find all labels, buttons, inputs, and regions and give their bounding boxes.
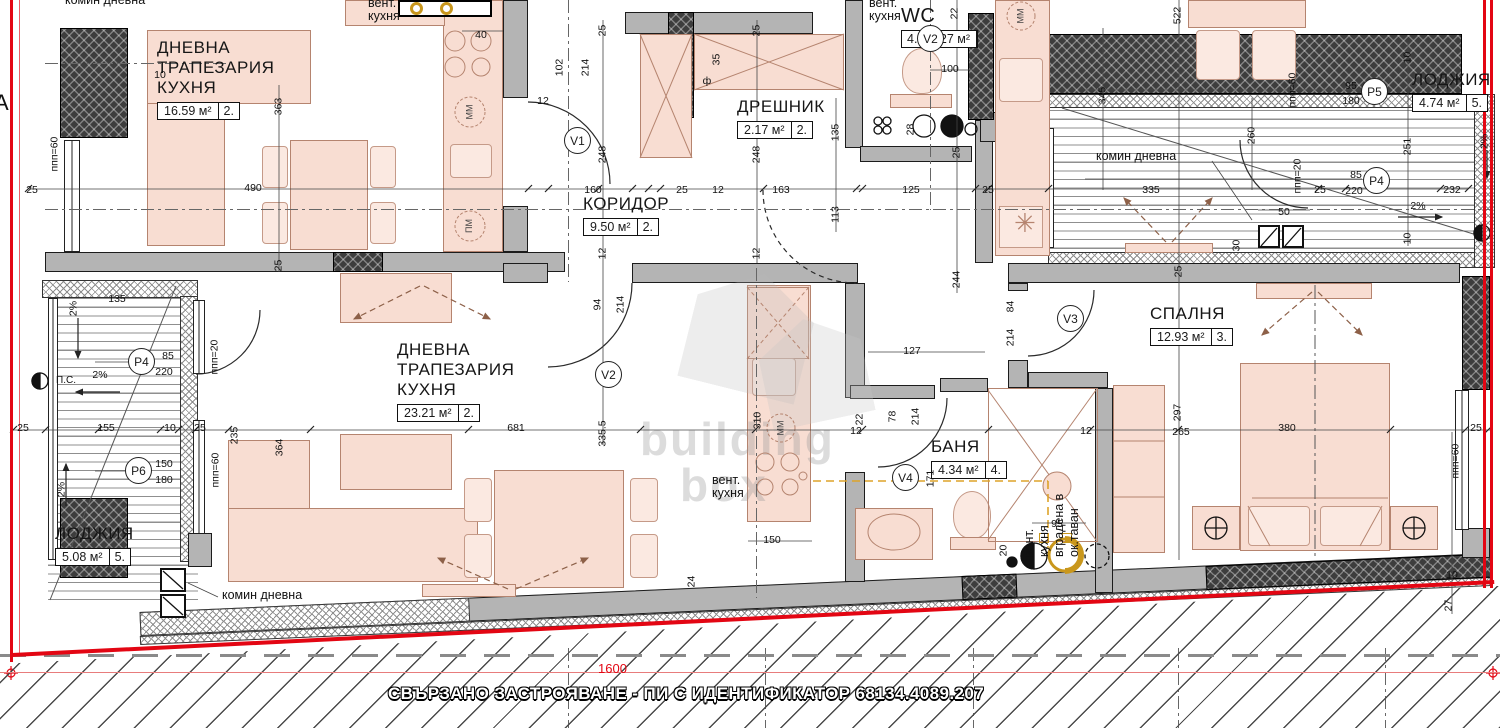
dimension-label: 25 [186,423,214,434]
room-label-living1: ДНЕВНА ТРАПЕЗАРИЯ КУХНЯ16.59 м²2. [157,38,274,120]
dimension-label: 260 [1247,122,1258,150]
room-area: 2.17 м² [738,122,792,138]
dimension-label: 2% [57,476,68,504]
appliance-label: ММ [776,421,786,436]
dimension-label: 171 [926,465,937,493]
regulation-line [0,672,1500,673]
dimension-label: 335.5 [598,420,609,448]
room-area-box: 16.59 м²2. [157,102,240,120]
dimension-label: 135 [831,119,842,147]
dimension-label: 25 [952,139,963,167]
room-name: ЛОДЖИЯ [55,524,134,544]
room-area-box: 5.08 м²5. [55,548,131,566]
annotation-note: вент. кухня [712,474,744,500]
dimension-label: 127 [898,346,926,357]
dimension-label: 10 [1403,225,1414,253]
room-label-banya: БАНЯ4.34 м²4. [931,437,1007,479]
vent-marker-V2: V2 [917,25,944,52]
dimension-label: 297 [1173,399,1184,427]
dimension-label: ппп=60 [211,460,222,488]
room-class-number: 5. [110,549,130,565]
boundary-line-left [10,0,13,662]
dimension-label: 380 [1273,423,1301,434]
dimension-label: 2% [86,370,114,381]
dimension-label: 22 [950,0,961,28]
dimension-label: 214 [911,403,922,431]
dimension-label: 28 [906,116,917,144]
dimension-label: 12 [529,96,557,107]
room-area: 12.93 м² [1151,329,1212,345]
window-marker-Р4: Р4 [1363,167,1390,194]
room-name: БАНЯ [931,437,1007,457]
annotation-note: комин дневна [222,589,302,602]
dimension-label: ппп=20 [210,347,221,375]
dimension-label: 12 [842,426,870,437]
annotation-note: вент. кухня [368,0,400,23]
room-name: ДРЕШНИК [737,97,825,117]
vent-marker-V3: V3 [1057,305,1084,332]
loggia-diagonals [50,108,1480,600]
dimension-label: 25 [274,252,285,280]
room-class-number: 2. [219,103,239,119]
dimension-label: 363 [274,93,285,121]
dimension-label: 20 [999,537,1010,565]
appliance-label: ММ [465,105,475,120]
dimension-label: ф [693,76,721,87]
dimension-label: 25 [1306,185,1334,196]
room-area: 4.74 м² [1413,95,1467,111]
dimension-label: 232 [1438,185,1466,196]
dimension-label: 25 [18,185,46,196]
dimension-label: 84 [1006,293,1017,321]
room-label-loggia-bottom: ЛОДЖИЯ5.08 м²5. [55,524,134,566]
room-label-living2: ДНЕВНА ТРАПЕЗАРИЯ КУХНЯ23.21 м²2. [397,340,514,422]
dimension-label: 364 [275,434,286,462]
room-area-box: 2.17 м²2. [737,121,813,139]
dimension-label: 25 [598,17,609,45]
dimension-label: 30 [1232,232,1243,260]
vent-marker-V1: V1 [564,127,591,154]
room-class-number: 2. [638,219,658,235]
dimension-label: 2% [69,295,80,323]
dimension-label: 12 [598,240,609,268]
dimension-label: 85 [154,351,182,362]
dimension-label: 40 [467,30,495,41]
grid-label: А [0,90,9,116]
room-area-box: 23.21 м²2. [397,404,480,422]
dimension-label: 35 [712,46,723,74]
dimension-label: 25 [9,423,37,434]
dimension-label: ппп=60 [1451,451,1462,479]
dimension-label: 50 [1270,207,1298,218]
room-class-number: 3. [1212,329,1232,345]
dimension-label: 265 [1167,427,1195,438]
dimension-label: 180 [1337,96,1365,107]
furniture-detail: ✳ [445,2,1388,550]
dimension-label: 125 [897,185,925,196]
annotation-note: комин дневна [1096,150,1176,163]
dimension-label: 2% [1404,201,1432,212]
room-label-dreshnik: ДРЕШНИК2.17 м²2. [737,97,825,139]
svg-text:✳: ✳ [1014,208,1036,238]
dimension-label: 135 [103,294,131,305]
vent-marker-V4: V4 [892,464,919,491]
room-area-box: 9.50 м²2. [583,218,659,236]
dimension-label: 214 [1006,324,1017,352]
dimension-label: 27 [1444,592,1455,620]
dimension-label: 10 [1403,44,1414,72]
dimension-label: 220 [150,367,178,378]
room-area-box: 4.74 м²5. [1412,94,1488,112]
room-label-corridor: КОРИДОР9.50 м²2. [583,194,669,236]
window-marker-Р5: Р5 [1361,78,1388,105]
dimension-label: 235 [230,422,241,450]
dimension-label: 150 [150,459,178,470]
dimension-label: 25 [668,185,696,196]
site-dashed-line [0,654,1500,657]
dimension-label: 345 [1098,82,1109,110]
dimension-label: 102 [555,54,566,82]
dimension-label: 248 [752,141,763,169]
dimension-label: ппп=60 [1288,80,1299,108]
room-area: 9.50 м² [584,219,638,235]
dimension-label: 248 [598,141,609,169]
dimension-label: 25 [752,17,763,45]
dimension-label: 2% [1480,128,1491,156]
dimension-label: 244 [952,266,963,294]
dimension-label: 251 [1403,133,1414,161]
room-class-number: 4. [986,462,1006,478]
room-area: 23.21 м² [398,405,459,421]
dimension-label: 12 [752,240,763,268]
vent-marker-V2: V2 [595,361,622,388]
room-area-box: 12.93 м²3. [1150,328,1233,346]
dimension-label: 78 [888,403,899,431]
dimension-label: 220 [1340,186,1368,197]
dimension-label: 25 [1462,423,1490,434]
floor-plan: building box [0,0,1500,728]
room-name: WC [901,6,978,26]
room-class-number: 5. [1467,95,1487,111]
dimension-label: 25 [1174,258,1185,286]
dimension-label: 94 [593,291,604,319]
annotation-note: вент. кухня [869,0,901,23]
dimension-label: 310 [753,407,764,435]
room-name: ДНЕВНА ТРАПЕЗАРИЯ КУХНЯ [397,340,514,400]
room-label-loggia-top: ЛОДЖИЯ4.74 м²5. [1412,70,1491,112]
annotation-note: комин дневна [65,0,145,7]
dimension-label: 155 [92,423,120,434]
annotation-note: П.С. [56,374,76,387]
room-area: 16.59 м² [158,103,219,119]
appliance-label: ММ [1016,9,1026,24]
room-area: 5.08 м² [56,549,110,565]
dimension-label: 10 [146,70,174,81]
dimension-label: ппп=20 [1293,166,1304,194]
dimension-label: 163 [767,185,795,196]
dimension-label: 12 [1072,426,1100,437]
room-class-number: 2. [459,405,479,421]
dimension-label: 113 [831,201,842,229]
room-name: СПАЛНЯ [1150,304,1233,324]
dimension-label: 25 [974,185,1002,196]
appliance-label: ПМ [464,219,474,233]
builtin-vent-note: вент. кухня вградена в ок.таван [1022,494,1082,557]
dimension-label: 100 [936,64,964,75]
dimension-label: 522 [1173,2,1184,30]
dimension-label: 214 [616,291,627,319]
room-name: ДНЕВНА ТРАПЕЗАРИЯ КУХНЯ [157,38,274,98]
boundary-line-left-thin [19,0,20,656]
dimension-label: ппп=60 [50,144,61,172]
site-dimension: 1600 [598,661,627,676]
room-name: ЛОДЖИЯ [1412,70,1491,90]
dimension-label: 214 [581,54,592,82]
dimension-label: 10 [156,423,184,434]
dimension-label: 12 [704,185,732,196]
dimension-label: 150 [758,535,786,546]
room-name: КОРИДОР [583,194,669,214]
site-identifier-note: СВЪРЗАНО ЗАСТРОЯВАНЕ - ПИ С ИДЕНТИФИКАТО… [388,684,984,704]
window-marker-Р4: Р4 [128,348,155,375]
dimension-label: 160 [579,185,607,196]
dimension-label: 681 [502,423,530,434]
dimension-label: 335 [1137,185,1165,196]
dimension-label: 180 [150,475,178,486]
room-class-number: 2. [792,122,812,138]
room-area: 4.34 м² [932,462,986,478]
dimension-label: 24 [687,568,698,596]
window-marker-Р6: Р6 [125,457,152,484]
room-label-bedroom: СПАЛНЯ12.93 м²3. [1150,304,1233,346]
dimension-label: 490 [239,183,267,194]
dimension-label: 10 [1438,570,1466,581]
room-area-box: 4.34 м²4. [931,461,1007,479]
